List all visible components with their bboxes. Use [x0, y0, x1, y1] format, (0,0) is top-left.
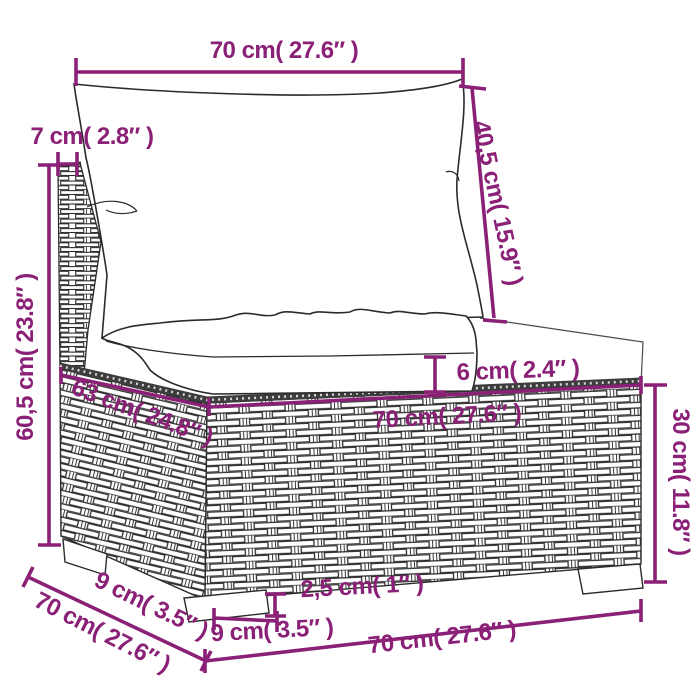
dim-label-total-height: 60,5 cm( 23.8″ ): [14, 273, 38, 441]
dim-label-top-width: 70 cm( 27.6″ ): [210, 39, 359, 63]
dim-label-base-height: 30 cm( 11.8″ ): [668, 408, 692, 555]
dim-label-foot-width: 9 cm( 3.5″ ): [210, 616, 334, 646]
dim-label-seat-cushion-thickness: 6 cm( 2.4″ ): [456, 357, 580, 385]
dimension-diagram: 70 cm( 27.6″ ) 7 cm( 2.8″ ) 60,5 cm( 23.…: [0, 0, 700, 700]
dim-label-foot-height: 2,5 cm( 1″ ): [300, 572, 424, 602]
foot-front-right: [578, 564, 643, 594]
back-cushion: [74, 79, 483, 338]
dim-label-back-post-width: 7 cm( 2.8″ ): [31, 125, 154, 149]
